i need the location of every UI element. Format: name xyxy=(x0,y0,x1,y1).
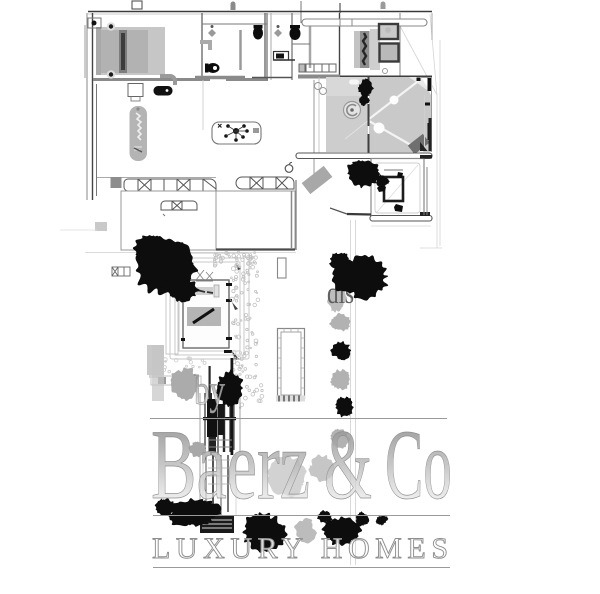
svg-text:Baerz: Baerz xyxy=(151,409,310,520)
svg-text:Co: Co xyxy=(385,409,452,520)
svg-text:by: by xyxy=(194,368,225,414)
svg-text:&: & xyxy=(324,409,372,520)
